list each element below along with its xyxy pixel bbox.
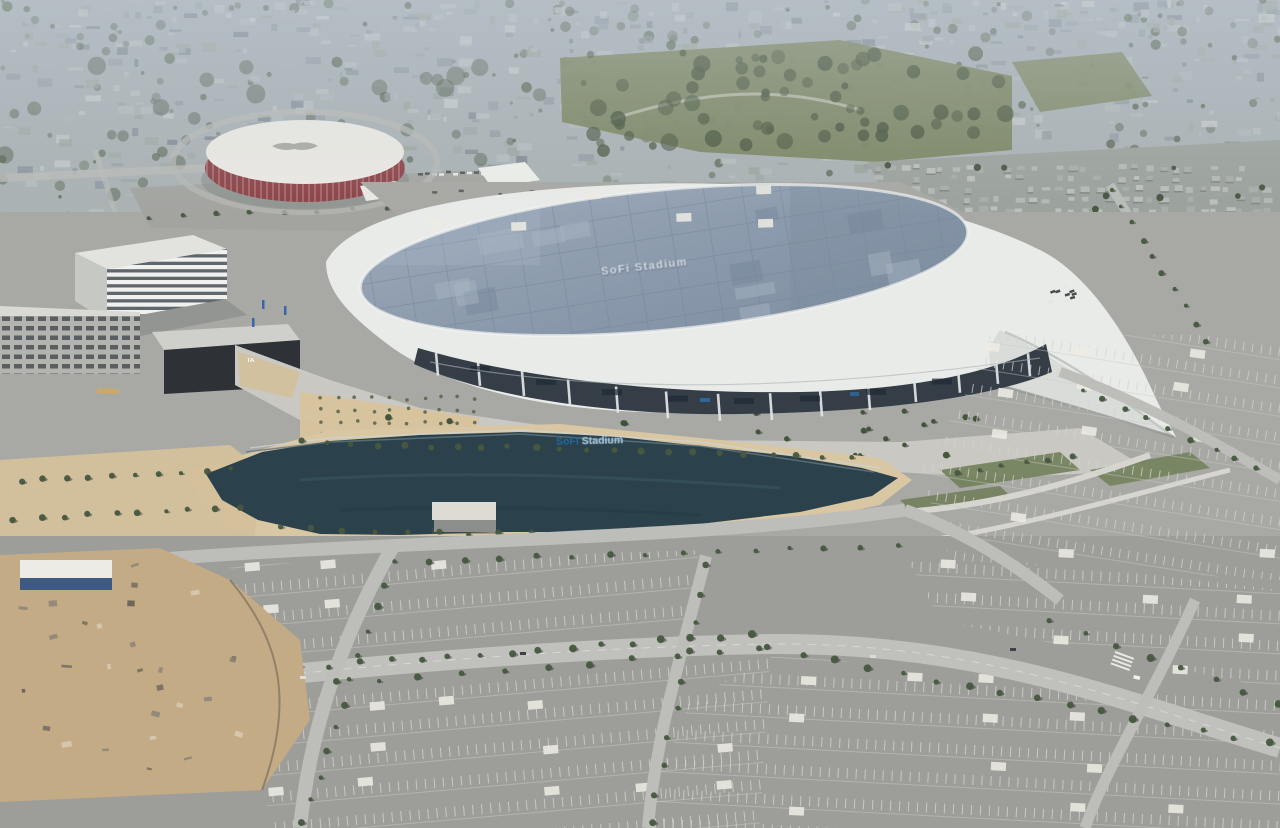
atmospheric-haze [0,0,1280,215]
blue-banner-pole [252,318,255,327]
blue-banner-pole [262,300,265,309]
aerial-photo: SoFi Stadium SoFiStadium TA [0,0,1280,828]
garage-facade [0,316,140,374]
bus [97,388,119,394]
blue-banner-pole [284,306,287,315]
low-building-blue-wall [20,578,112,590]
parking-garage [0,306,140,374]
aerial-photo-canvas [0,0,1280,828]
lakeside-pavilion [434,518,496,532]
pavilion-roof [432,502,496,520]
